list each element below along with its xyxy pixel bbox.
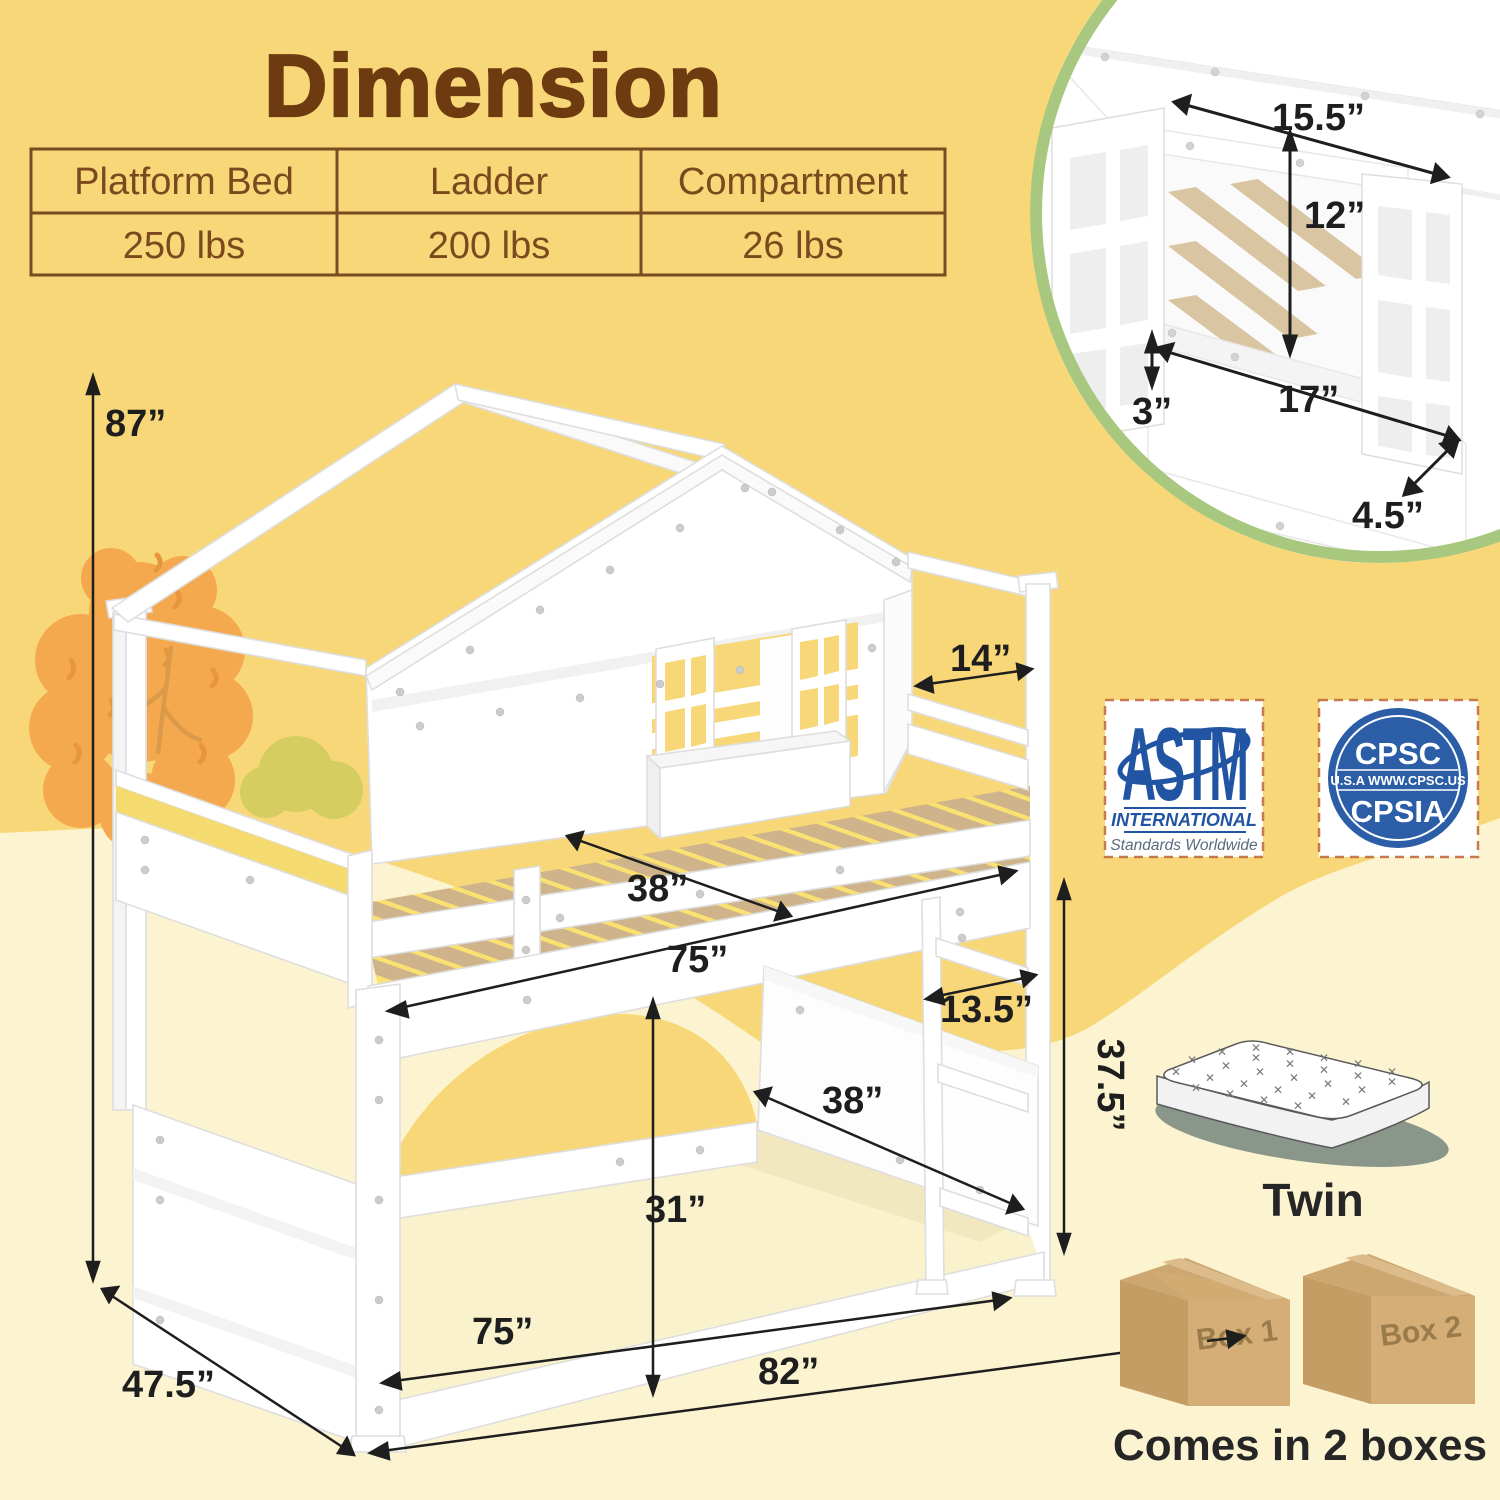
svg-text:✕: ✕ bbox=[1259, 1093, 1269, 1107]
svg-text:15.5”: 15.5” bbox=[1272, 97, 1365, 139]
svg-text:Compartment: Compartment bbox=[678, 161, 909, 203]
svg-text:✕: ✕ bbox=[1353, 1069, 1363, 1083]
svg-text:17”: 17” bbox=[1278, 379, 1339, 421]
svg-text:U.S.A WWW.CPSC.US: U.S.A WWW.CPSC.US bbox=[1330, 773, 1466, 788]
svg-text:✕: ✕ bbox=[1221, 1059, 1231, 1073]
svg-text:14”: 14” bbox=[950, 638, 1011, 680]
svg-text:31”: 31” bbox=[645, 1189, 706, 1231]
svg-text:38”: 38” bbox=[627, 868, 688, 910]
svg-text:82”: 82” bbox=[758, 1351, 819, 1393]
svg-text:Platform Bed: Platform Bed bbox=[74, 161, 294, 203]
svg-text:4.5”: 4.5” bbox=[1352, 495, 1424, 537]
svg-text:✕: ✕ bbox=[1191, 1081, 1201, 1095]
svg-text:87”: 87” bbox=[105, 403, 166, 445]
svg-text:13.5”: 13.5” bbox=[940, 989, 1033, 1031]
svg-text:Comes in 2 boxes: Comes in 2 boxes bbox=[1113, 1421, 1487, 1470]
svg-text:✕: ✕ bbox=[1341, 1095, 1351, 1109]
svg-text:✕: ✕ bbox=[1323, 1077, 1333, 1091]
svg-text:✕: ✕ bbox=[1273, 1083, 1283, 1097]
svg-text:Twin: Twin bbox=[1262, 1174, 1363, 1226]
svg-text:✕: ✕ bbox=[1171, 1065, 1181, 1079]
svg-text:✕: ✕ bbox=[1251, 1051, 1261, 1065]
svg-text:✕: ✕ bbox=[1285, 1057, 1295, 1071]
svg-text:Dimension: Dimension bbox=[264, 36, 723, 135]
svg-text:12”: 12” bbox=[1304, 195, 1365, 237]
svg-text:✕: ✕ bbox=[1387, 1075, 1397, 1089]
svg-text:✕: ✕ bbox=[1357, 1083, 1367, 1097]
svg-text:3”: 3” bbox=[1132, 391, 1172, 433]
svg-text:250 lbs: 250 lbs bbox=[123, 225, 246, 267]
svg-text:✕: ✕ bbox=[1217, 1045, 1227, 1059]
svg-text:37.5”: 37.5” bbox=[1089, 1039, 1131, 1132]
svg-text:✕: ✕ bbox=[1187, 1053, 1197, 1067]
svg-text:26 lbs: 26 lbs bbox=[742, 225, 843, 267]
svg-text:✕: ✕ bbox=[1205, 1071, 1215, 1085]
svg-text:✕: ✕ bbox=[1293, 1099, 1303, 1113]
svg-text:47.5”: 47.5” bbox=[122, 1364, 215, 1406]
svg-text:38”: 38” bbox=[822, 1080, 883, 1122]
svg-text:✕: ✕ bbox=[1289, 1071, 1299, 1085]
svg-text:✕: ✕ bbox=[1225, 1087, 1235, 1101]
svg-text:✕: ✕ bbox=[1239, 1077, 1249, 1091]
svg-text:ASTM: ASTM bbox=[1122, 707, 1246, 823]
svg-text:CPSIA: CPSIA bbox=[1351, 794, 1446, 829]
svg-text:Ladder: Ladder bbox=[430, 161, 549, 203]
svg-text:200 lbs: 200 lbs bbox=[428, 225, 551, 267]
svg-text:75”: 75” bbox=[667, 939, 728, 981]
svg-text:75”: 75” bbox=[472, 1311, 533, 1353]
svg-text:Standards Worldwide: Standards Worldwide bbox=[1110, 837, 1258, 854]
svg-text:INTERNATIONAL: INTERNATIONAL bbox=[1111, 810, 1257, 830]
svg-text:CPSC: CPSC bbox=[1355, 736, 1441, 771]
svg-text:✕: ✕ bbox=[1307, 1089, 1317, 1103]
svg-text:✕: ✕ bbox=[1319, 1063, 1329, 1077]
svg-text:✕: ✕ bbox=[1255, 1065, 1265, 1079]
